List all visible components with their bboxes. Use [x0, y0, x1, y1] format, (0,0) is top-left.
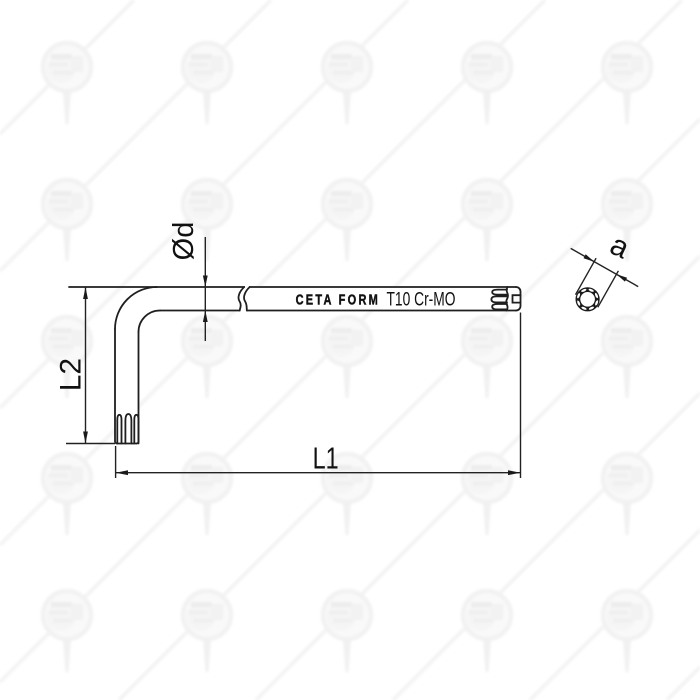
svg-text:L2: L2 — [55, 358, 88, 391]
svg-text:CETA FORM: CETA FORM — [296, 293, 381, 309]
svg-text:L1: L1 — [313, 441, 339, 476]
svg-text:Ød: Ød — [168, 222, 200, 261]
svg-text:a: a — [605, 228, 634, 265]
svg-text:T10 Cr-MO: T10 Cr-MO — [387, 290, 456, 311]
